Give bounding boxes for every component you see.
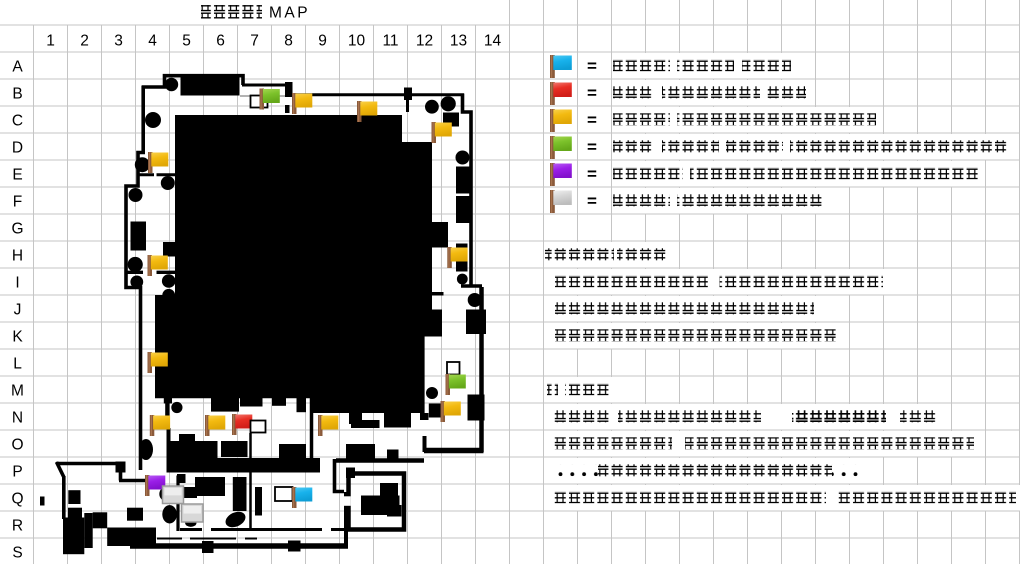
svg-text:P: P (12, 464, 22, 481)
svg-text:K: K (12, 329, 23, 346)
svg-text:I: I (15, 275, 19, 292)
svg-text:D: D (12, 140, 23, 157)
svg-text:Q: Q (11, 491, 23, 508)
svg-text:R: R (12, 518, 23, 535)
svg-text:=: = (587, 111, 597, 130)
svg-text:7: 7 (250, 33, 259, 50)
svg-text:14: 14 (484, 33, 502, 50)
svg-text:C: C (12, 113, 23, 130)
svg-text:A: A (12, 59, 23, 76)
svg-text:=: = (587, 192, 597, 211)
svg-text:8: 8 (284, 33, 293, 50)
svg-text:6: 6 (216, 33, 225, 50)
svg-text:1: 1 (46, 33, 55, 50)
svg-text:N: N (12, 410, 23, 427)
svg-text:J: J (14, 302, 22, 319)
svg-text:G: G (11, 221, 23, 238)
svg-text:10: 10 (348, 33, 366, 50)
svg-text:2: 2 (80, 33, 89, 50)
svg-text:S: S (12, 545, 22, 562)
svg-text:12: 12 (416, 33, 433, 50)
svg-text:=: = (587, 84, 597, 103)
svg-text:O: O (11, 437, 23, 454)
svg-text:F: F (13, 194, 22, 211)
svg-text:9: 9 (318, 33, 327, 50)
svg-text:3: 3 (114, 33, 123, 50)
svg-text:H: H (12, 248, 23, 265)
svg-text:=: = (587, 57, 597, 76)
svg-text:4: 4 (148, 33, 157, 50)
svg-text:E: E (12, 167, 22, 184)
svg-text:11: 11 (382, 33, 398, 50)
svg-text:13: 13 (450, 33, 467, 50)
svg-text:MAP: MAP (269, 5, 310, 22)
svg-text:=: = (587, 138, 597, 157)
svg-text:M: M (11, 383, 24, 400)
svg-text:L: L (13, 356, 22, 373)
svg-text:B: B (12, 86, 22, 103)
svg-text:=: = (587, 165, 597, 184)
svg-text:5: 5 (182, 33, 191, 50)
